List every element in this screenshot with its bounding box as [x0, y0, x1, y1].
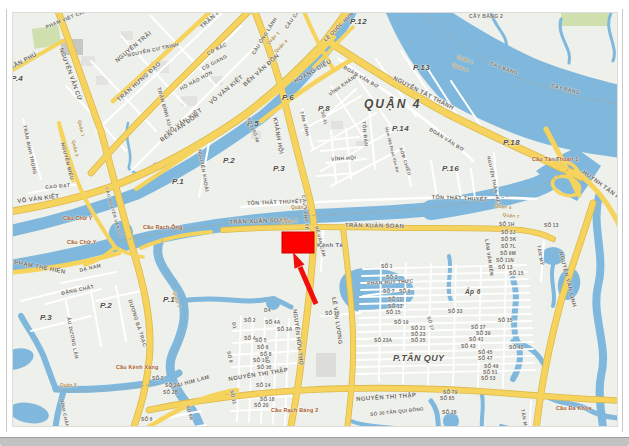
map-label: PHẠM VIẾT CHÁNH: [45, 12, 95, 30]
map-label: SỐ 6: [257, 346, 269, 351]
map-label: NGUYỄN VĂN CỪ: [58, 47, 83, 101]
map-label: P.14: [392, 125, 409, 133]
map-label: SỐ 5A: [184, 405, 193, 421]
map-label: NGUYỄN HỮU THỌ: [291, 309, 303, 366]
map-label: NGUYỄN VĂN LINH: [558, 251, 577, 308]
map-label: TRẦN XUÂN SOẠN: [229, 217, 288, 225]
map-label: SỐ 9M: [500, 252, 516, 257]
map-label: LÊ QUỐC HƯNG: [323, 12, 357, 43]
map-label: LÂM VĂN BỀN: [483, 239, 493, 276]
map-label: Cầu Rạch Bàng 2: [271, 408, 318, 413]
map-label: BẾN VÂN ĐỒN: [242, 52, 280, 87]
screenshot-stage: P.4P.6P.5P.2P.1P.3P.8P.12P.13P.14P.16P.1…: [0, 0, 629, 446]
map-label: Quận 4: [494, 204, 511, 211]
map-labels: P.4P.6P.5P.2P.1P.3P.8P.12P.13P.14P.16P.1…: [13, 13, 617, 426]
map-label: SỐ 1: [381, 265, 393, 270]
map-label: SỐ 2A: [165, 384, 180, 389]
map-label: HỒ HẢO HỚN: [179, 70, 213, 91]
map-label: Cầu Rạch Ông: [143, 225, 183, 230]
map-label: P.4: [12, 75, 23, 83]
map-label: TRẦN XUÂN SOẠN: [345, 222, 404, 229]
map-label: VĨNH HỘI: [331, 155, 356, 162]
map-label: Quận 7: [502, 213, 519, 220]
map-label: SỐ 19: [394, 321, 409, 326]
map-label: ĐẶNG CHẤT: [61, 284, 94, 296]
map-label: TRẦN HƯNG ĐẠO: [199, 12, 245, 29]
map-label: DƯƠNG BÁ TRẠC: [127, 299, 147, 348]
map-label: VĨNH KHÁNH: [328, 72, 359, 97]
map-label: Quận 4: [291, 206, 308, 211]
map-label: Cầu Đa Khoa: [556, 406, 592, 411]
map-label: ĐOÀN VĂN BƠ: [428, 127, 464, 152]
window-frame-left: [6, 9, 7, 432]
map-label: Ấp 6: [465, 289, 481, 296]
map-label: BÌNH CHÁNH: [59, 399, 70, 427]
map-label: SỐ 48: [251, 129, 259, 143]
map-label: SỐ 4A: [265, 321, 280, 326]
map-label: SỐ 28: [442, 411, 457, 416]
map-label: P.2: [100, 302, 112, 310]
map-label: SỐ 47: [478, 357, 493, 362]
map-label: SỐ 9: [225, 351, 232, 363]
map-label: SỐ 43: [509, 346, 524, 351]
map-label: SỐ 15: [386, 311, 401, 316]
map-label: SỐ 11: [388, 298, 402, 303]
map-label: VÕ VĂN KIỆT: [17, 193, 60, 204]
map-label: SỐ 7: [383, 290, 395, 295]
map-label: Quận 4: [451, 63, 468, 74]
map-label: SỐ 4: [244, 337, 256, 342]
map-label: SỐ 14: [256, 384, 271, 389]
map-label: SỐ 11: [228, 390, 236, 405]
map-label: TÂN VĨNH: [298, 111, 309, 137]
map-label: SỐ 41: [469, 338, 484, 343]
map-label: SỐ 1H: [499, 223, 514, 228]
map-label: DẠ NAM: [79, 263, 102, 273]
map-label: TÂN MỸ: [519, 409, 527, 427]
map-label: KHÁNH HỘI: [272, 117, 284, 155]
map-label: SỐ 3A: [277, 328, 292, 333]
map-label: HOÀNG DIỆU: [293, 58, 332, 84]
map-label: D1: [230, 322, 236, 329]
map-label: CÂY BÀNG: [551, 83, 581, 95]
map-label: SỐ 3: [386, 276, 398, 281]
window-frame-right: [622, 9, 623, 432]
map-label: P.12: [350, 18, 367, 26]
map-label: P.TÂN QUY: [393, 354, 444, 363]
map-label: TRẦN HƯNG ĐẠO: [116, 60, 162, 102]
map-label: SỐ 23A: [374, 339, 392, 344]
map-label: SỐ 3: [263, 356, 270, 368]
map-label: CẦU CALMETTE: [284, 12, 313, 30]
map-label: Quận 7: [172, 291, 181, 308]
map-label: CÔ GIANG: [201, 54, 228, 72]
map-label: NGUYỄN THỊ THẬP: [356, 392, 417, 402]
map-label: P.13: [413, 64, 430, 72]
map-label: SỐ 5: [255, 339, 267, 344]
map-label: P.1: [172, 178, 184, 186]
map-label: LÊ VĂN LƯƠNG: [330, 297, 342, 345]
map-label: SỐ 2B: [163, 391, 178, 396]
map-label: TÔN THẤT THUYẾT: [432, 195, 488, 202]
window-bottom-bar: [0, 437, 629, 446]
map-label: QUẬN 4: [364, 98, 421, 110]
map-label: SỐ 3J: [501, 231, 516, 236]
map-label: CAO ĐẠT: [45, 183, 71, 190]
map-label: SỐ 41: [320, 111, 328, 125]
map-label: Quận 4: [274, 39, 289, 54]
map-label: SỐ 2: [152, 377, 164, 382]
map-label: TRẦN ĐÌNH XU: [156, 87, 172, 127]
map-label: NGUYỄN KHOÁI: [197, 149, 209, 192]
map-label: SỐ 5K: [501, 238, 516, 243]
map-label: VÕ VĂN KIỆT: [208, 74, 244, 106]
map-label: CẦU NGUYỄN VĂN CỪ: [104, 187, 122, 238]
map-label: SỐ 17: [425, 316, 433, 331]
map-label: Hẻm 266 Đoàn Văn Bơ: [384, 127, 399, 173]
map-label: Quận 1: [77, 120, 85, 137]
map-label: Cầu Chữ Y: [67, 240, 97, 245]
map-label: SỐ 2: [244, 319, 256, 324]
map-label: SỐ 43: [461, 345, 476, 350]
map-label: TRẦN PHÚ: [12, 51, 38, 72]
map-canvas[interactable]: P.4P.6P.5P.2P.1P.3P.8P.12P.13P.14P.16P.1…: [12, 12, 618, 427]
map-label: SỐ 9: [399, 290, 411, 295]
map-label: HUỲNH TẤN PHÁT: [581, 169, 618, 208]
map-label: SỐ 35: [498, 319, 513, 324]
map-label: P.3: [273, 165, 285, 173]
map-label: Quận 7: [281, 220, 298, 225]
map-label: SỐ 20: [254, 404, 269, 409]
map-label: SỐ 30 TÂN QUI ĐÔNG: [370, 407, 424, 417]
map-label: Cầu Chữ Y: [63, 216, 93, 221]
map-label: SỐ 6: [141, 418, 153, 423]
map-label: SỐ 85: [440, 397, 455, 402]
map-label: P.6: [282, 94, 294, 102]
map-label: TÔN ĐẢN: [361, 121, 369, 147]
map-label: Quận 5: [71, 140, 79, 157]
map-label: P.16: [442, 165, 459, 173]
map-label: P.18: [503, 139, 520, 147]
map-label: CÂY BÀNG 2: [469, 14, 503, 19]
map-label: P.3: [40, 314, 52, 322]
map-label: D4: [264, 309, 271, 314]
map-label: SỐ 15: [325, 312, 340, 317]
map-label: SỐ 13: [544, 224, 559, 229]
map-label: SỐ 15: [509, 272, 524, 277]
map-label: SỐ 11N: [496, 259, 514, 264]
map-label: ÂU DƯƠNG LÂN: [65, 317, 78, 360]
map-label: SỐ 7L: [501, 245, 516, 250]
map-label: Cầu Kênh Xáng: [116, 365, 158, 370]
map-label: SỐ 25: [411, 339, 426, 344]
map-label: Cầu Tân Thuận 1: [532, 157, 578, 162]
map-label: SỐ 33: [448, 310, 463, 315]
map-label: SỐ 53: [481, 377, 496, 382]
map-label: ←: [149, 157, 159, 167]
map-label: P.2: [223, 157, 235, 165]
map-label: Quận 8: [60, 384, 77, 389]
map-label: PHẠM THẾ HIỂN: [14, 259, 66, 275]
map-label: CẦU KÊNH TẺ: [300, 195, 308, 231]
map-label: TÂN MỸ: [535, 245, 543, 266]
map-label: TRẦN BÌNH TRỌNG: [21, 125, 36, 175]
map-label: CÂY BÀNG: [489, 61, 518, 76]
